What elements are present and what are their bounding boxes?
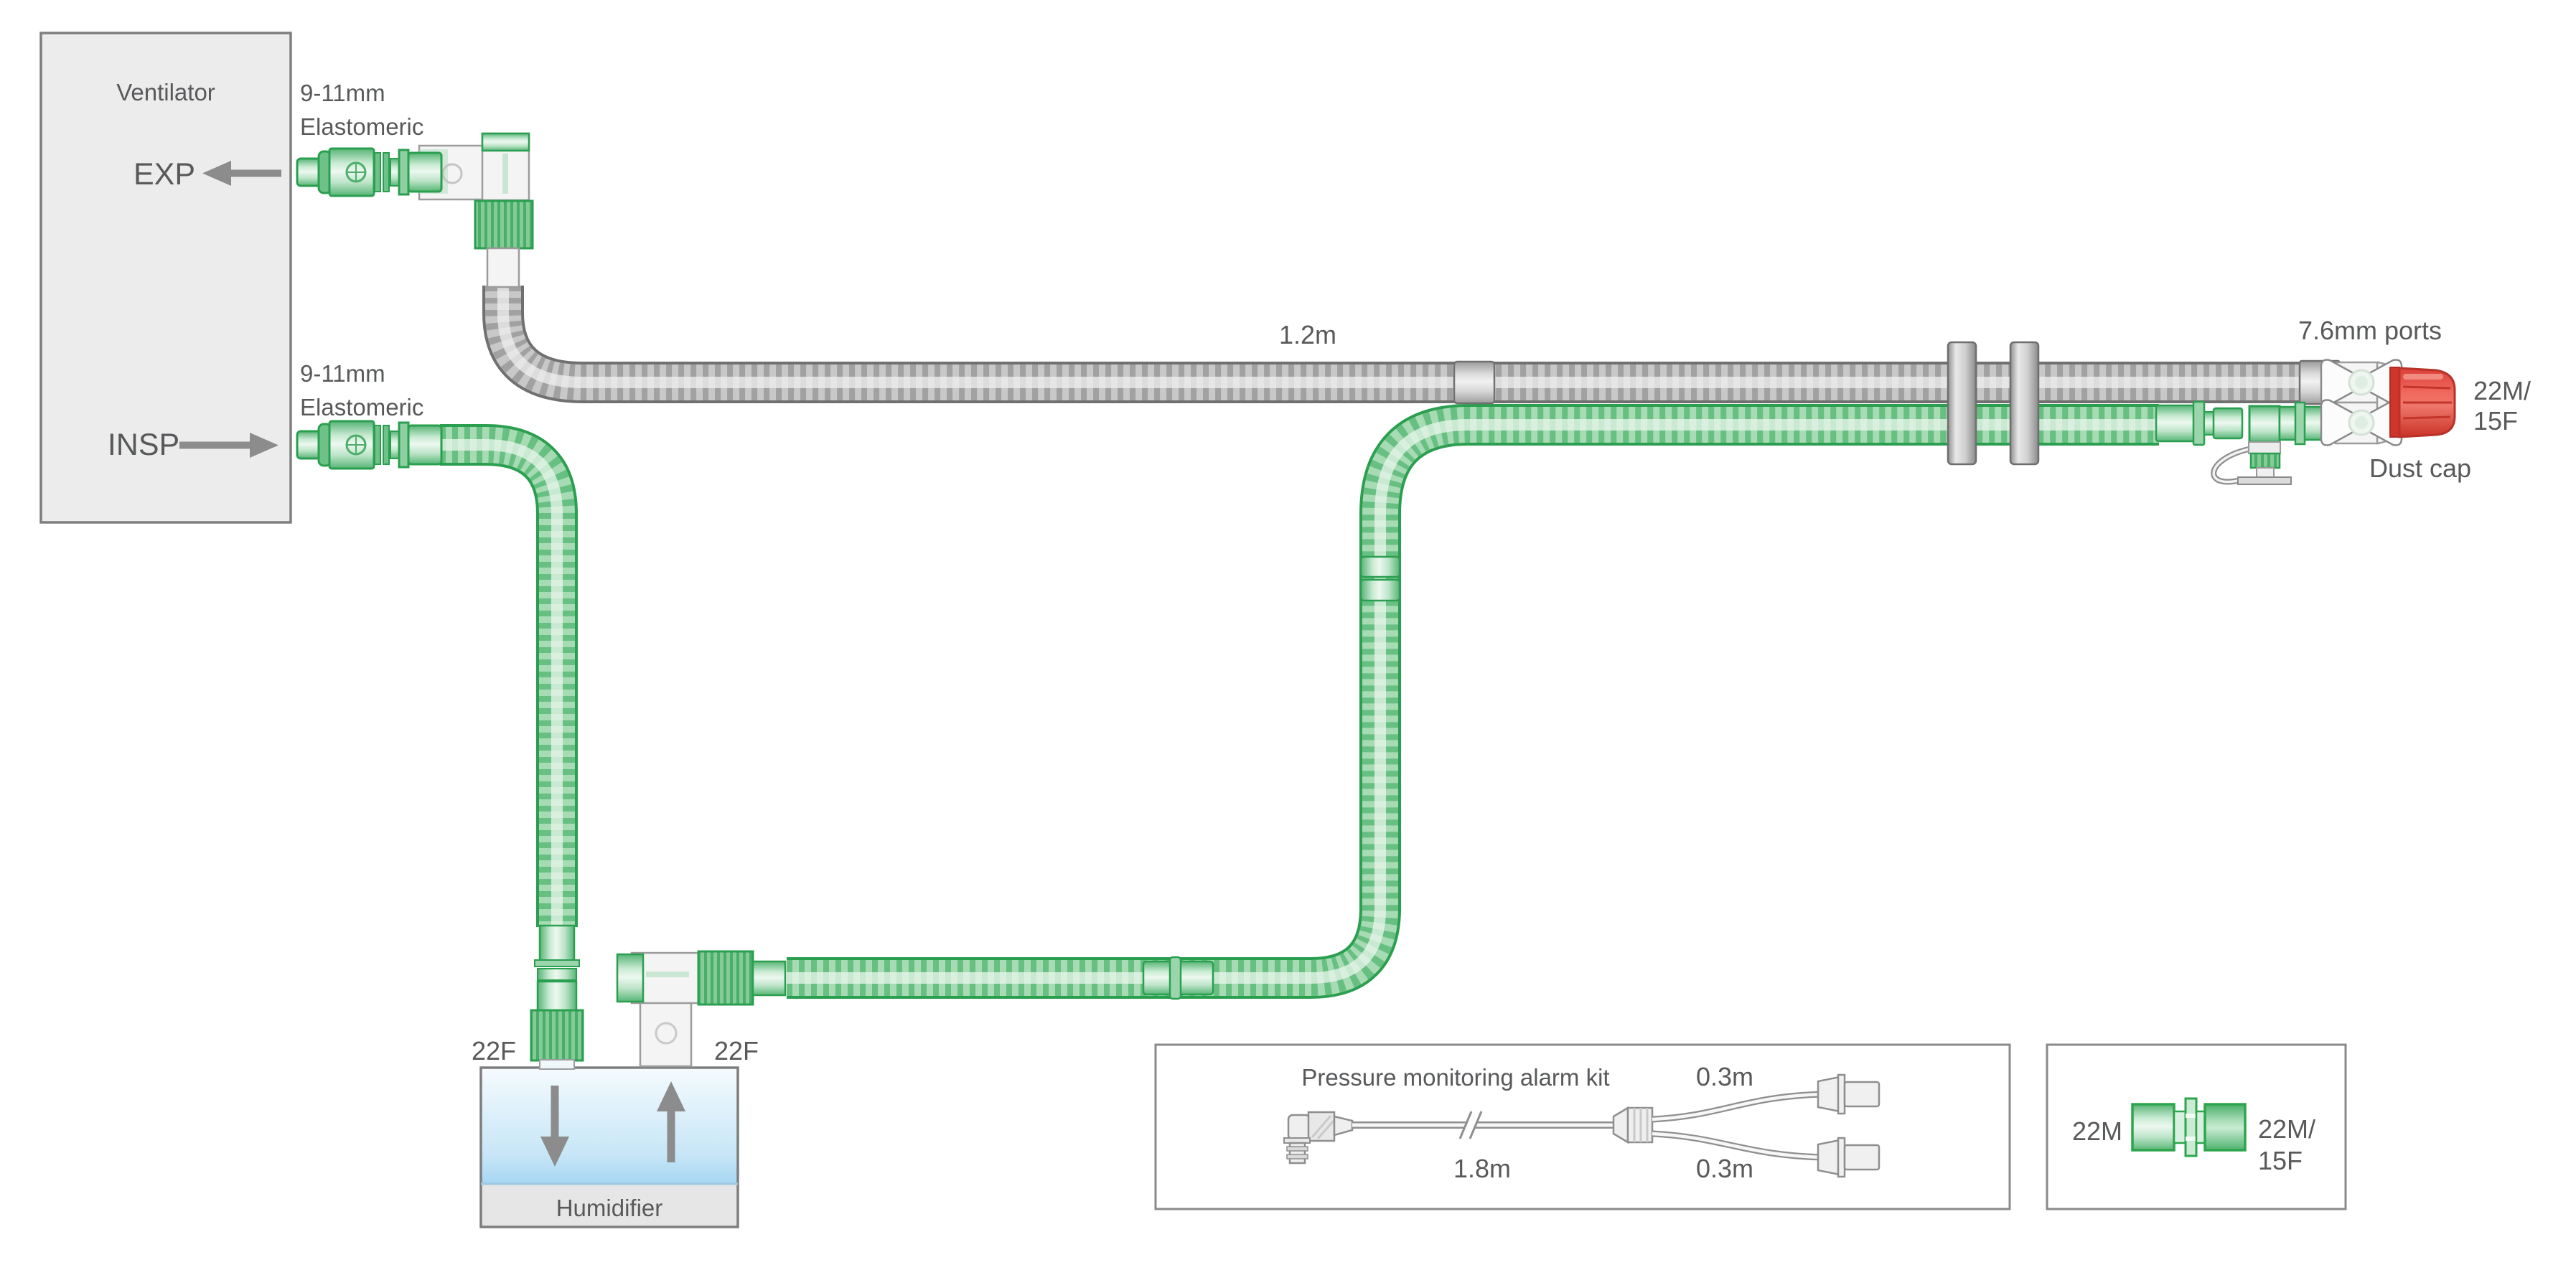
tube-clip [2010, 342, 2038, 464]
exp-connector-size-label: 9-11mm Elastomeric [300, 80, 423, 140]
insp-limb-tube [440, 445, 557, 927]
humidifier-box: Humidifier [481, 1068, 738, 1227]
humidifier-inlet-size-label: 22F [472, 1036, 516, 1066]
humidifier-water [481, 1068, 738, 1184]
svg-text:9-11mm: 9-11mm [300, 360, 385, 387]
insp-elastomeric-connector [297, 421, 441, 469]
insp-connector-size-label: 9-11mm Elastomeric [300, 360, 423, 420]
exp-elastomeric-connector [297, 149, 441, 196]
exp-limb-length-label: 1.2m [1279, 320, 1336, 349]
adapter-box: 22M 22M/ 15F [2047, 1045, 2346, 1209]
patient-limb-tube [787, 425, 2159, 978]
svg-text:15F: 15F [2258, 1146, 2303, 1175]
insp-port-label: INSP [108, 428, 179, 462]
svg-text:15F: 15F [2473, 406, 2518, 436]
svg-text:22M/: 22M/ [2258, 1114, 2315, 1144]
humidifier-outlet-elbow [617, 951, 785, 1066]
monitor-ports-label: 7.6mm ports [2298, 316, 2442, 345]
exp-port-label: EXP [134, 157, 195, 192]
pressure-kit-top-branch-length: 0.3m [1696, 1062, 1753, 1091]
svg-text:22M/: 22M/ [2473, 376, 2531, 405]
pressure-kit-title: Pressure monitoring alarm kit [1301, 1064, 1609, 1091]
humidifier-inlet-nut [531, 1010, 583, 1060]
tube-clip [1948, 342, 1976, 464]
svg-text:Elastomeric: Elastomeric [300, 394, 423, 420]
exp-tube-sleeve [1454, 362, 1494, 403]
svg-text:Elastomeric: Elastomeric [300, 113, 423, 140]
adapter-left-size-label: 22M [2072, 1116, 2122, 1146]
exp-elbow-nut [475, 201, 533, 248]
humidifier-label: Humidifier [556, 1195, 663, 1221]
dust-cap-label: Dust cap [2369, 453, 2471, 483]
humidifier-outlet-collar [698, 951, 753, 1005]
patient-tube-sleeve [1143, 957, 1213, 999]
pressure-kit-box: Pressure monitoring alarm kit 0.3m 1.8m … [1156, 1045, 2010, 1209]
patient-limb-end-connector [2156, 402, 2242, 445]
adapter-connector [2132, 1099, 2245, 1156]
tee-cap [2238, 477, 2291, 484]
dust-cap [2390, 367, 2455, 437]
patient-connector-size-label: 22M/ 15F [2473, 376, 2531, 436]
ventilator-label: Ventilator [116, 79, 215, 105]
breathing-circuit-diagram: Ventilator EXP INSP 9-11mm Elastomeric 9… [0, 0, 2576, 1270]
humidifier-inlet-connector [531, 926, 583, 1069]
svg-text:9-11mm: 9-11mm [300, 80, 385, 106]
pressure-kit-splitter [1613, 1108, 1652, 1142]
pressure-kit-bottom-branch-length: 0.3m [1696, 1154, 1753, 1183]
pressure-kit-main-length: 1.8m [1453, 1154, 1511, 1183]
humidifier-outlet-size-label: 22F [714, 1036, 759, 1066]
